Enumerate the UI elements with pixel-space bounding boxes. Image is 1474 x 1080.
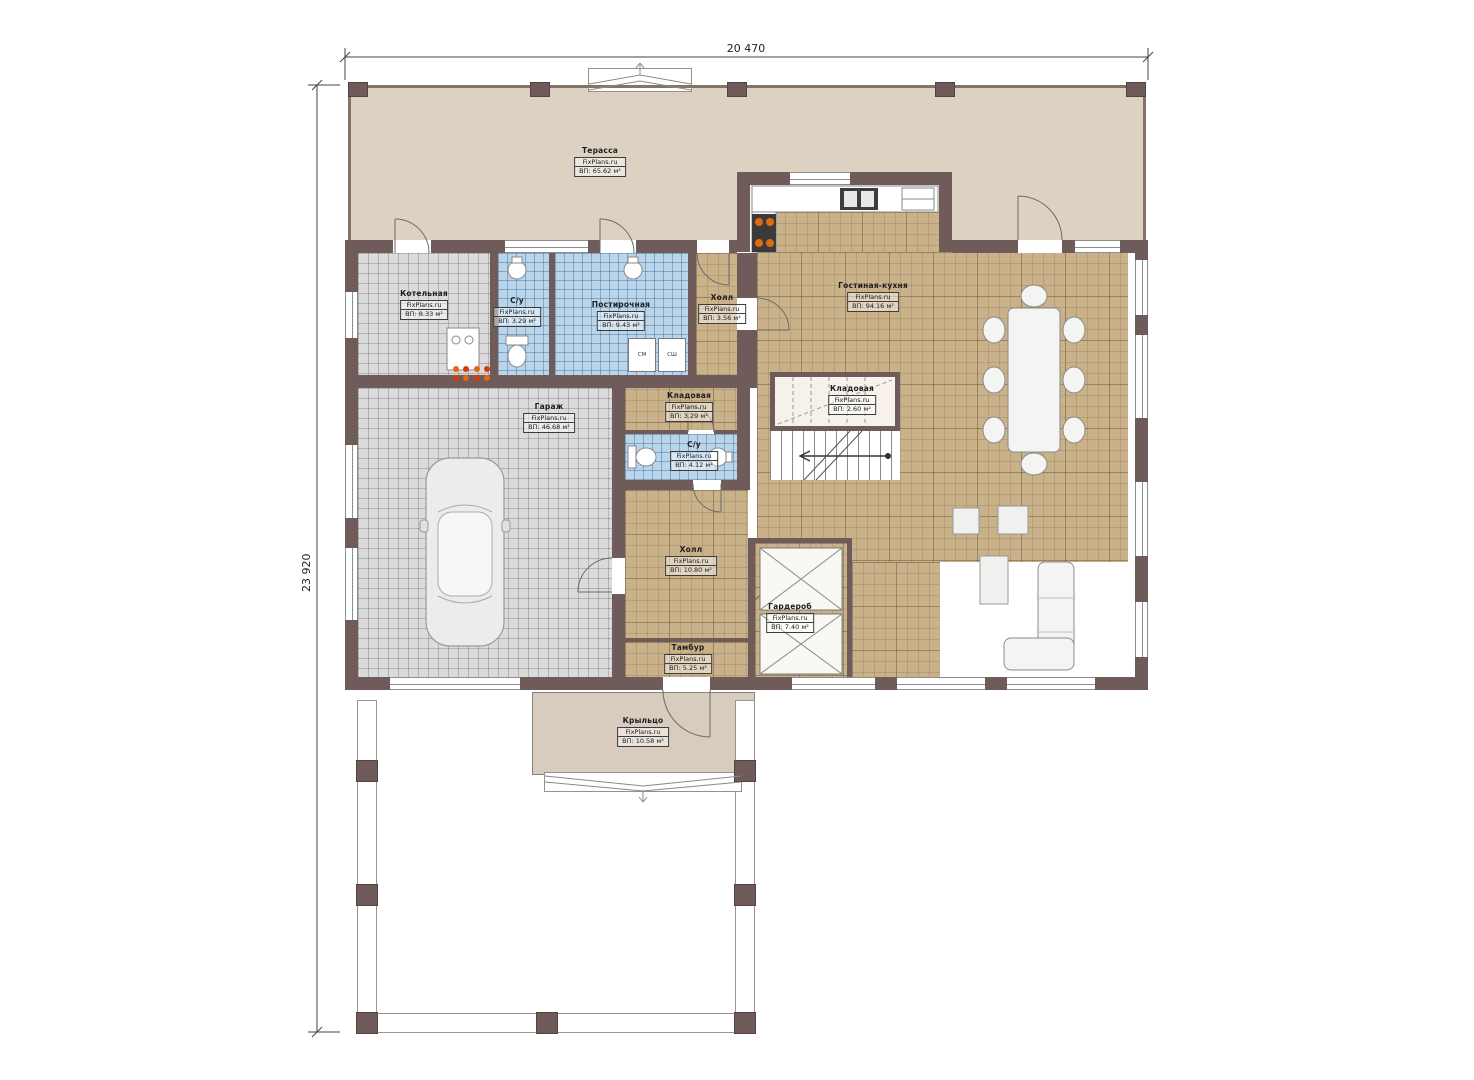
door-gap-boiler — [393, 240, 431, 253]
room-area: ВП: 46.68 м² — [524, 422, 574, 431]
window-right-3 — [1135, 482, 1148, 556]
coffee-table — [980, 556, 1008, 604]
room-label-bathroom2: С/у FixPlans.ru ВП: 4.12 м² — [670, 440, 718, 471]
brand-text: FixPlans.ru — [829, 396, 875, 404]
window-left-2 — [345, 445, 358, 518]
living-room-tile-lower — [852, 562, 940, 677]
room-name: Терасса — [582, 146, 618, 156]
room-name: Котельная — [400, 289, 448, 299]
pergola-post — [734, 884, 756, 906]
brand-text: FixPlans.ru — [699, 305, 745, 313]
brand-text: FixPlans.ru — [767, 614, 813, 622]
brand-text: FixPlans.ru — [524, 414, 574, 422]
sofa — [1004, 562, 1074, 670]
room-label-storage2: Кладовая FixPlans.ru ВП: 2.60 м² — [828, 384, 876, 415]
room-label-hall2: Холл FixPlans.ru ВП: 10.80 м² — [665, 545, 717, 576]
terrace-post — [935, 82, 955, 97]
room-name: Гостиная-кухня — [838, 281, 908, 291]
room-label-laundry: Постирочная FixPlans.ru ВП: 9.43 м² — [592, 300, 650, 331]
storage2-wall-top — [770, 372, 900, 377]
brand-text: FixPlans.ru — [665, 655, 711, 663]
window-left-3 — [345, 548, 358, 620]
window-bottom-1 — [792, 677, 875, 690]
room-label-bathroom1: С/у FixPlans.ru ВП: 3.29 м² — [493, 296, 541, 327]
window-top-bath — [505, 240, 588, 253]
roof-canopy-porch — [544, 772, 742, 792]
room-name: Холл — [711, 293, 734, 303]
brand-text: FixPlans.ru — [494, 308, 540, 316]
washing-machine-label: СМ — [638, 352, 647, 358]
dryer-machine-label: СШ — [667, 352, 677, 358]
washing-machine: СМ — [628, 338, 656, 372]
room-area: ВП: 2.60 м² — [829, 404, 875, 413]
room-name: Холл — [680, 545, 703, 555]
terrace-post — [530, 82, 550, 97]
wall-storage-bath — [625, 430, 737, 434]
room-area: ВП: 8.33 м² — [401, 309, 447, 318]
room-label-hall1: Холл FixPlans.ru ВП: 3.56 м² — [698, 293, 746, 324]
wall-laundry-hall — [688, 253, 696, 375]
room-area: ВП: 3.29 м² — [666, 411, 712, 420]
room-label-wardrobe: Гардероб FixPlans.ru ВП: 7.40 м² — [766, 602, 814, 633]
door-gap-garage-hall — [612, 558, 625, 594]
room-area: ВП: 65.62 м² — [575, 166, 625, 175]
room-name: Гараж — [535, 402, 564, 412]
door-gap-terrace — [1018, 240, 1062, 253]
brand-text: FixPlans.ru — [666, 557, 716, 565]
door-gap-storage1 — [688, 430, 714, 434]
pergola-post — [734, 1012, 756, 1034]
room-label-vestibule: Тамбур FixPlans.ru ВП: 5.25 м² — [664, 643, 712, 674]
window-kitchen — [790, 172, 850, 185]
room-label-living-kitchen: Гостиная-кухня FixPlans.ru ВП: 94.16 м² — [838, 281, 908, 312]
room-area: ВП: 7.40 м² — [767, 622, 813, 631]
door-gap-bath2 — [693, 480, 721, 490]
pergola-post — [356, 1012, 378, 1034]
window-right-4 — [1135, 602, 1148, 657]
window-bottom-3 — [1007, 677, 1095, 690]
brand-text: FixPlans.ru — [618, 728, 668, 736]
storage2-wall-bottom — [770, 426, 900, 431]
brand-text: FixPlans.ru — [598, 312, 644, 320]
terrace-wall-left — [348, 85, 351, 240]
room-label-terrace: Терасса FixPlans.ru ВП: 65.62 м² — [574, 146, 626, 177]
pergola-beam-right — [735, 700, 755, 1033]
room-area: ВП: 5.25 м² — [665, 663, 711, 672]
wall-hall2-vestibule — [625, 638, 748, 642]
terrace-post — [727, 82, 747, 97]
room-area: ВП: 10.80 м² — [666, 565, 716, 574]
pergola-post — [734, 760, 756, 782]
room-name: Кладовая — [830, 384, 874, 394]
dryer-machine: СШ — [658, 338, 686, 372]
wall-horizontal-mid — [345, 375, 757, 388]
wardrobe-wall-left — [748, 538, 755, 678]
wall-column-right — [737, 388, 750, 490]
terrace-wall-right — [1143, 85, 1146, 240]
pergola-post — [356, 884, 378, 906]
room-area: ВП: 4.12 м² — [671, 460, 717, 469]
room-name: Постирочная — [592, 300, 650, 310]
wall-bath-laundry — [549, 253, 555, 375]
terrace-wall-top — [348, 85, 1146, 88]
kitchen-alcove-tile — [774, 212, 939, 252]
pergola-post — [536, 1012, 558, 1034]
room-name: С/у — [510, 296, 524, 306]
wardrobe-wall-top — [748, 538, 852, 543]
window-right-2 — [1135, 335, 1148, 418]
pergola-beam-left — [357, 700, 377, 1033]
room-area: ВП: 3.56 м² — [699, 313, 745, 322]
window-right-1 — [1135, 260, 1148, 315]
room-label-garage: Гараж FixPlans.ru ВП: 46.68 м² — [523, 402, 575, 433]
door-gap-entrance — [663, 677, 710, 690]
room-name: Крыльцо — [623, 716, 664, 726]
stairs-treads — [770, 431, 900, 480]
terrace-post — [1126, 82, 1146, 97]
brand-text: FixPlans.ru — [666, 403, 712, 411]
room-name: Кладовая — [667, 391, 711, 401]
terrace-post — [348, 82, 368, 97]
room-area: ВП: 94.16 м² — [848, 301, 898, 310]
room-label-storage1: Кладовая FixPlans.ru ВП: 3.29 м² — [665, 391, 713, 422]
storage2-wall-right — [895, 372, 900, 431]
room-area: ВП: 10.58 м² — [618, 736, 668, 745]
garage-gate — [390, 677, 520, 690]
roof-canopy-top — [588, 68, 692, 92]
window-bottom-2 — [897, 677, 985, 690]
brand-text: FixPlans.ru — [575, 158, 625, 166]
pergola-post — [356, 760, 378, 782]
room-label-boiler: Котельная FixPlans.ru ВП: 8.33 м² — [400, 289, 448, 320]
floor-plan-canvas: СМ СШ — [0, 0, 1474, 1080]
room-area: ВП: 9.43 м² — [598, 320, 644, 329]
window-left-1 — [345, 292, 358, 338]
dimension-height-label: 23 920 — [300, 554, 313, 593]
room-name: С/у — [687, 440, 701, 450]
room-area: ВП: 3.29 м² — [494, 316, 540, 325]
wardrobe-wall-right — [847, 543, 852, 677]
room-label-porch: Крыльцо FixPlans.ru ВП: 10.58 м² — [617, 716, 669, 747]
brand-text: FixPlans.ru — [848, 293, 898, 301]
window-top-right — [1075, 240, 1120, 253]
brand-text: FixPlans.ru — [401, 301, 447, 309]
alcove-wall-right — [939, 172, 952, 252]
brand-text: FixPlans.ru — [671, 452, 717, 460]
room-name: Гардероб — [768, 602, 812, 612]
room-name: Тамбур — [671, 643, 704, 653]
dimension-width-label: 20 470 — [727, 42, 766, 55]
door-gap-laundry — [600, 240, 636, 253]
storage2-wall-left — [770, 372, 775, 431]
wall-garage-right — [612, 388, 625, 677]
door-gap-hall1 — [697, 240, 729, 253]
